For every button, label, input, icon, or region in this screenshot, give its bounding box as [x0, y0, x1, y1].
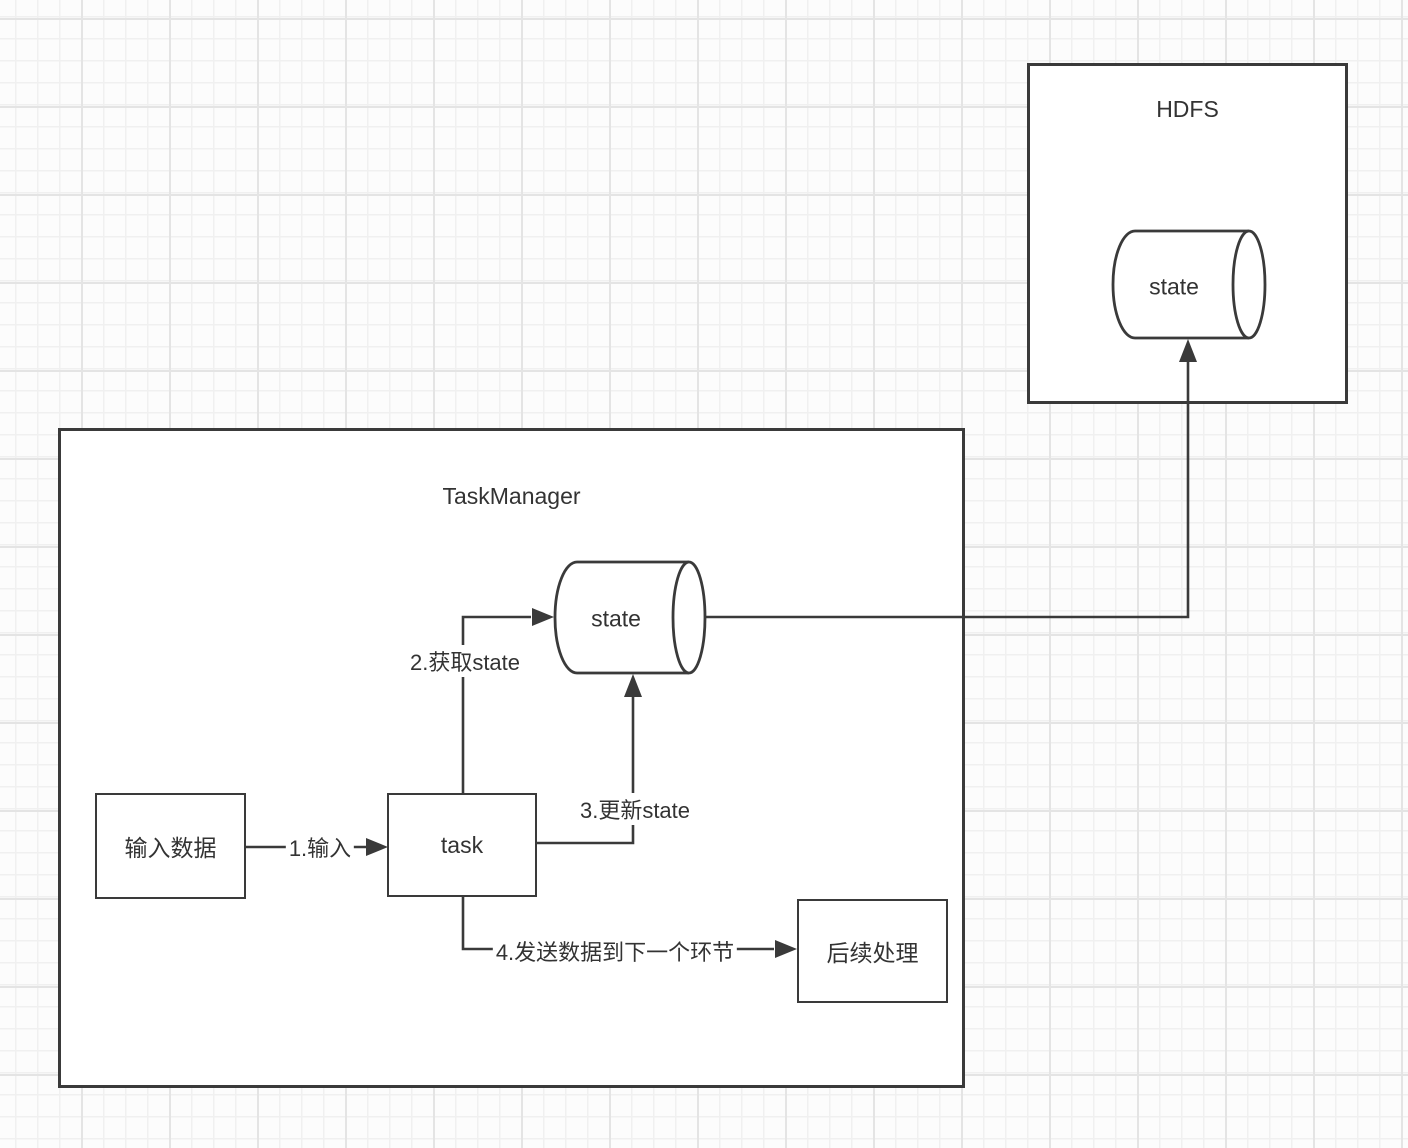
tm-state-label: state — [591, 606, 641, 633]
arrowhead-to-hdfs-state — [1179, 339, 1197, 362]
connector-layer — [0, 0, 1408, 1148]
hdfs-state-label: state — [1149, 274, 1199, 301]
arrowhead-send-next — [775, 940, 797, 958]
diagram-canvas: TaskManager HDFS 输入数据 task 后续处理 — [0, 0, 1408, 1148]
arrowhead-input — [366, 838, 388, 856]
edge-label-send-next: 4.发送数据到下一个环节 — [493, 935, 737, 967]
arrowhead-update-state — [624, 674, 642, 697]
edge-get-state — [463, 617, 531, 793]
edge-label-get-state: 2.获取state — [407, 645, 523, 677]
edge-tm-state-to-hdfs — [705, 362, 1188, 617]
arrowhead-get-state — [532, 608, 554, 626]
edge-label-input: 1.输入 — [286, 831, 354, 863]
edge-label-update-state: 3.更新state — [577, 793, 693, 825]
